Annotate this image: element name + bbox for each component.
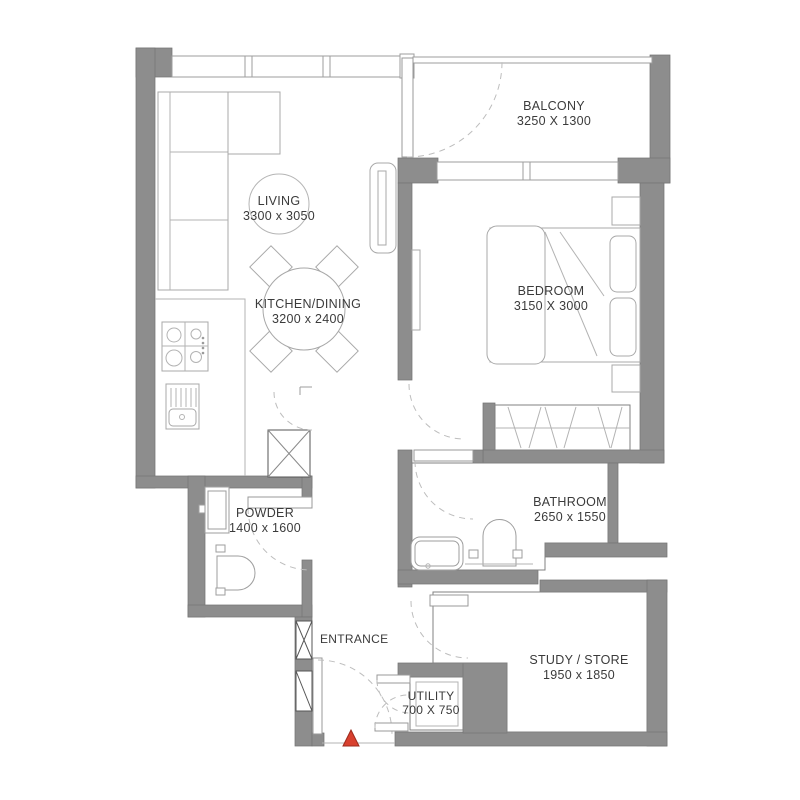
living-label: LIVING xyxy=(258,194,301,208)
wardrobe xyxy=(495,405,630,450)
bedroom-label: BEDROOM xyxy=(518,284,585,298)
balcony-door-leaf xyxy=(402,58,413,157)
powder-label: POWDER xyxy=(236,506,294,520)
bedroom-wall-panel xyxy=(412,250,420,330)
living-window xyxy=(172,56,402,77)
living-dims: 3300 x 3050 xyxy=(243,209,315,223)
balcony-label: BALCONY xyxy=(523,99,585,113)
kitchen-dining-label: KITCHEN/DINING xyxy=(255,297,361,311)
floor-plan-drawing: LIVING 3300 x 3050 KITCHEN/DINING 3200 x… xyxy=(0,0,800,800)
pillow xyxy=(610,298,636,356)
utility-label: UTILITY xyxy=(408,689,455,703)
balcony-dims: 3250 X 1300 xyxy=(517,114,591,128)
kitchen-dining-dims: 3200 x 2400 xyxy=(272,312,344,326)
window-mullion xyxy=(523,162,530,180)
kitchen-sink-icon xyxy=(166,384,199,429)
window-mullion xyxy=(245,56,252,77)
nightstand xyxy=(612,197,640,225)
bedroom-door-arc xyxy=(409,384,464,439)
study-store-dims: 1950 x 1850 xyxy=(543,668,615,682)
window-mullion xyxy=(323,56,330,77)
bathroom-label: BATHROOM xyxy=(533,495,607,509)
cooktop-icon xyxy=(162,322,208,371)
powder-toilet-icon xyxy=(216,545,255,595)
floor-plan: LIVING 3300 x 3050 KITCHEN/DINING 3200 x… xyxy=(0,0,800,800)
bathroom-dims: 2650 x 1550 xyxy=(534,510,606,524)
kitchen-door-arc xyxy=(274,387,312,430)
pillow xyxy=(610,236,636,292)
balcony-railing xyxy=(413,57,652,63)
bedroom-dims: 3150 X 3000 xyxy=(514,299,588,313)
entrance-marker xyxy=(343,730,359,746)
nightstand xyxy=(612,365,640,392)
balcony-door-arc xyxy=(407,62,502,157)
tv-unit xyxy=(370,163,396,253)
powder-dims: 1400 x 1600 xyxy=(229,521,301,535)
refrigerator-shaft xyxy=(268,430,310,477)
study-store-label: STUDY / STORE xyxy=(529,653,628,667)
balcony-door xyxy=(402,58,502,157)
washbasin-icon xyxy=(411,537,463,570)
utility-dims: 700 X 750 xyxy=(402,703,459,717)
entrance-label: ENTRANCE xyxy=(320,632,388,646)
